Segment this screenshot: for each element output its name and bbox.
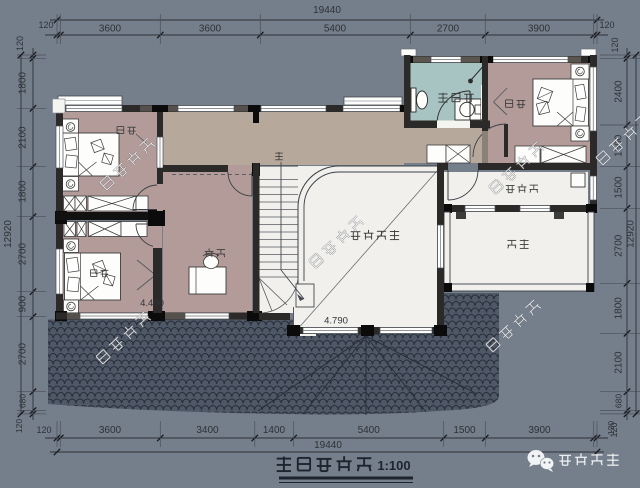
svg-text:3600: 3600: [199, 24, 222, 35]
svg-text:19440: 19440: [313, 5, 341, 16]
svg-text:2100: 2100: [18, 126, 29, 149]
svg-text:1800: 1800: [614, 297, 625, 320]
svg-text:19440: 19440: [314, 440, 342, 451]
svg-text:120: 120: [38, 20, 53, 30]
svg-text:1800: 1800: [18, 71, 29, 94]
svg-text:2400: 2400: [614, 80, 625, 103]
svg-text:3600: 3600: [99, 24, 122, 35]
svg-text:120: 120: [599, 20, 614, 30]
svg-text:1500: 1500: [453, 425, 476, 436]
svg-text:120: 120: [14, 419, 24, 433]
svg-text:2700: 2700: [18, 242, 29, 265]
svg-text:120: 120: [36, 425, 51, 435]
svg-text:2700: 2700: [614, 234, 625, 257]
svg-text:3400: 3400: [196, 425, 219, 436]
svg-text:3900: 3900: [528, 24, 551, 35]
svg-text:680: 680: [18, 394, 28, 408]
svg-text:1400: 1400: [263, 425, 286, 436]
svg-text:900: 900: [18, 295, 29, 312]
svg-text:5400: 5400: [324, 24, 347, 35]
svg-text:3600: 3600: [99, 425, 122, 436]
svg-text:120: 120: [610, 37, 620, 52]
svg-text:1500: 1500: [614, 176, 625, 199]
svg-text:120: 120: [15, 36, 25, 51]
svg-text:1800: 1800: [18, 180, 29, 203]
svg-text:12920: 12920: [3, 220, 14, 248]
svg-text:3900: 3900: [528, 425, 551, 436]
svg-text:2100: 2100: [614, 351, 625, 374]
svg-text:4.790: 4.790: [324, 316, 348, 327]
svg-text:4.400: 4.400: [140, 298, 164, 309]
svg-text:2700: 2700: [437, 24, 460, 35]
svg-text:12920: 12920: [626, 220, 637, 248]
svg-text:2700: 2700: [18, 342, 29, 365]
svg-text:5400: 5400: [358, 425, 381, 436]
svg-text:680: 680: [614, 394, 624, 408]
svg-text:120: 120: [606, 421, 616, 435]
svg-text:1:100: 1:100: [377, 458, 410, 473]
